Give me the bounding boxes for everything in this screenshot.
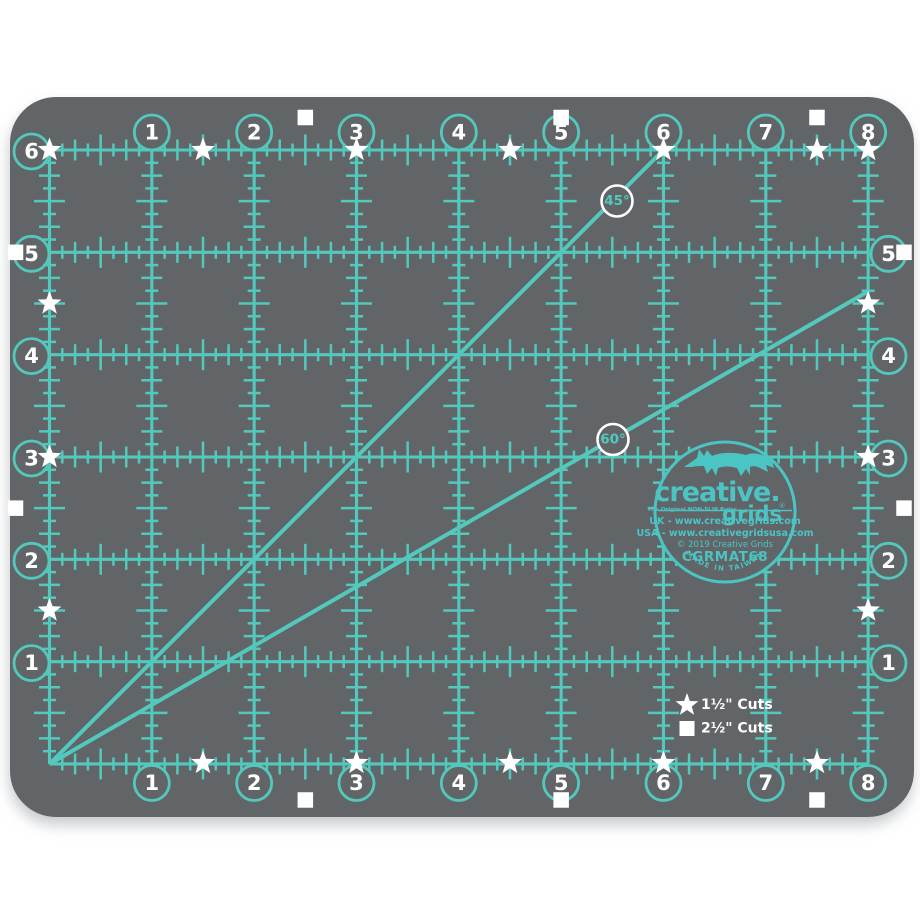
label-number: 4	[452, 121, 467, 145]
label-number: 4	[881, 344, 896, 368]
square-icon	[809, 792, 825, 808]
legend-label: 1½" Cuts	[701, 697, 773, 713]
square-icon	[896, 245, 912, 261]
square-icon	[8, 245, 24, 261]
label-number: 3	[881, 446, 896, 470]
label-number: 2	[24, 549, 39, 573]
square-icon	[680, 721, 695, 736]
cutting-mat-product-photo: 12345678123456786543215432145°60°creativ…	[0, 0, 920, 920]
angle-badge: 60°	[598, 424, 629, 455]
label-number: 1	[145, 121, 160, 145]
square-icon	[8, 500, 24, 516]
square-icon	[896, 500, 912, 516]
label-number: 2	[247, 121, 262, 145]
label-number: 5	[24, 242, 39, 266]
label-number: 2	[247, 771, 262, 795]
label-number: 3	[349, 771, 364, 795]
label-number: 7	[758, 771, 773, 795]
angle-badge-label: 60°	[600, 432, 626, 448]
label-number: 5	[881, 242, 896, 266]
mat-image: 12345678123456786543215432145°60°creativ…	[0, 0, 920, 920]
legend-label: 2½" Cuts	[701, 721, 773, 737]
square-icon	[298, 110, 314, 126]
square-icon	[298, 792, 314, 808]
angle-badge: 45°	[602, 186, 633, 217]
label-number: 6	[656, 771, 671, 795]
label-number: 5	[554, 771, 569, 795]
logo-registered-mark: ®	[779, 502, 786, 510]
label-number: 8	[861, 771, 876, 795]
label-number: 1	[145, 771, 160, 795]
label-number: 4	[452, 771, 467, 795]
label-number: 2	[881, 549, 896, 573]
label-number: 1	[881, 651, 896, 675]
label-number: 1	[24, 651, 39, 675]
angle-badge-label: 45°	[604, 193, 630, 209]
label-number: 7	[758, 121, 773, 145]
logo-usa-url: USA - www.creativegridsusa.com	[636, 528, 813, 539]
label-number: 6	[24, 140, 39, 164]
square-icon	[553, 110, 569, 126]
square-icon	[553, 792, 569, 808]
square-icon	[809, 110, 825, 126]
logo-uk-url: UK - www.creativegrids.com	[649, 516, 801, 527]
label-number: 4	[24, 344, 39, 368]
label-number: 3	[24, 446, 39, 470]
